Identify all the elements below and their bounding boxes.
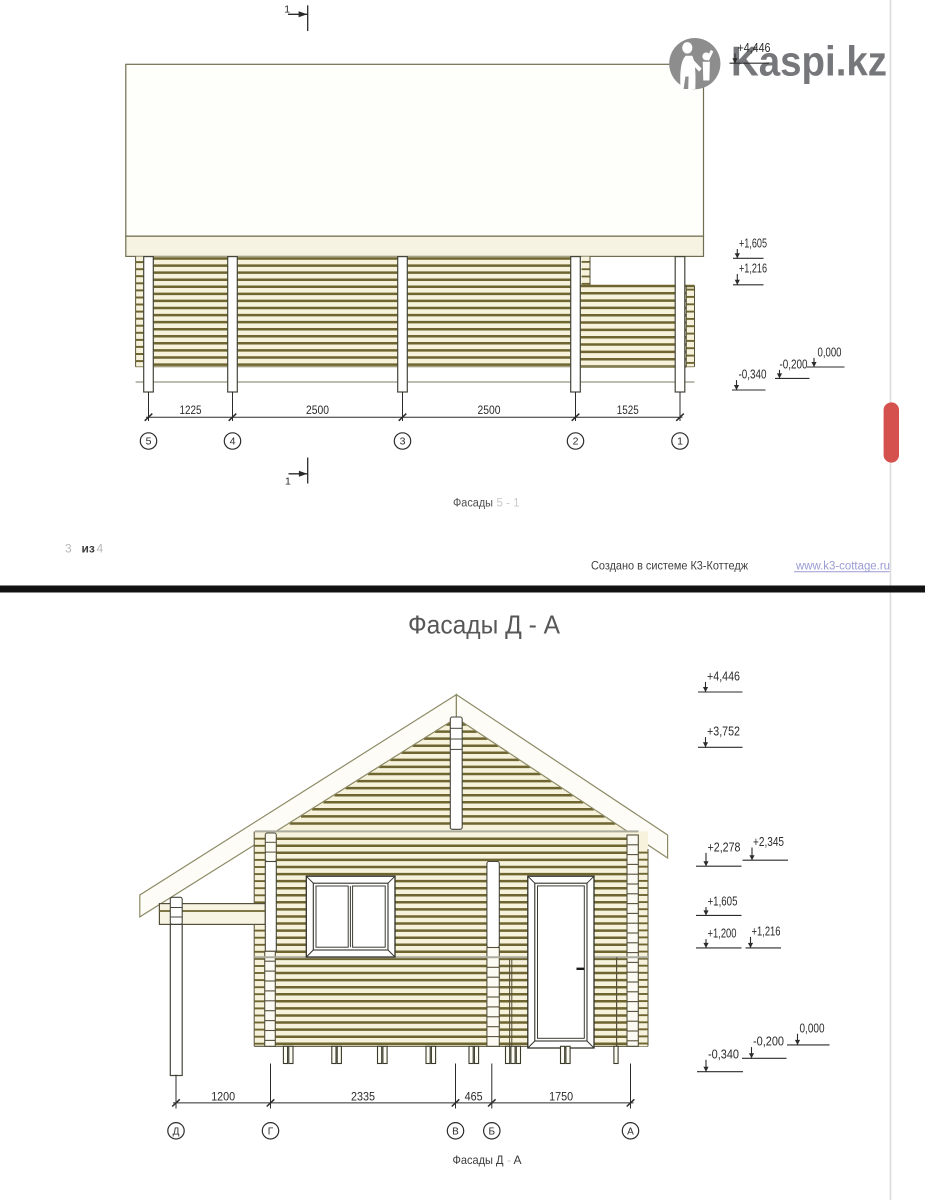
svg-text:В: В — [452, 1126, 459, 1137]
svg-text:-0,200: -0,200 — [780, 357, 808, 371]
svg-text:-0,340: -0,340 — [739, 368, 767, 382]
svg-text:+2,345: +2,345 — [753, 835, 784, 849]
svg-text:465: 465 — [465, 1089, 483, 1103]
svg-text:из: из — [82, 542, 95, 556]
svg-text:2500: 2500 — [306, 403, 329, 417]
svg-text:+1,605: +1,605 — [708, 895, 738, 909]
svg-text:А: А — [514, 1153, 522, 1167]
svg-text:-0,340: -0,340 — [708, 1047, 739, 1061]
svg-text:1525: 1525 — [617, 403, 639, 417]
svg-text:1: 1 — [677, 436, 683, 448]
svg-text:Создано в системе К3-Коттедж: Создано в системе К3-Коттедж — [591, 559, 749, 573]
svg-text:А: А — [627, 1126, 634, 1137]
svg-text:1: 1 — [285, 476, 291, 488]
svg-text:1200: 1200 — [211, 1089, 235, 1103]
svg-text:5: 5 — [146, 436, 152, 448]
svg-text:+1,216: +1,216 — [739, 262, 767, 276]
svg-text:Д: Д — [173, 1126, 180, 1137]
svg-text:+2,278: +2,278 — [708, 840, 741, 854]
svg-text:+3,752: +3,752 — [707, 725, 740, 739]
svg-text:Г: Г — [268, 1126, 274, 1137]
svg-text:Б: Б — [489, 1126, 496, 1137]
svg-text:5 - 1: 5 - 1 — [497, 497, 520, 509]
svg-text:+1,605: +1,605 — [739, 237, 767, 251]
svg-text:3: 3 — [65, 542, 72, 556]
svg-text:+4,446: +4,446 — [738, 41, 771, 55]
svg-text:2335: 2335 — [351, 1089, 375, 1103]
svg-text:+1,216: +1,216 — [752, 924, 781, 938]
svg-text:0,000: 0,000 — [818, 345, 842, 359]
svg-text:0,000: 0,000 — [800, 1021, 825, 1035]
svg-text:2: 2 — [573, 436, 579, 448]
svg-text:Фасады Д - А: Фасады Д - А — [408, 610, 561, 640]
svg-text:www.k3-cottage.ru: www.k3-cottage.ru — [795, 561, 890, 573]
svg-text:Фасады: Фасады — [453, 497, 493, 509]
svg-text:Фасады Д: Фасады Д — [453, 1153, 504, 1167]
svg-text:4: 4 — [97, 542, 104, 556]
svg-text:-: - — [507, 1153, 511, 1167]
svg-text:2500: 2500 — [478, 403, 501, 417]
svg-text:1: 1 — [284, 4, 290, 16]
svg-text:+4,446: +4,446 — [707, 669, 740, 683]
svg-text:-0,200: -0,200 — [753, 1035, 784, 1049]
svg-text:1750: 1750 — [549, 1089, 573, 1103]
svg-text:+1,200: +1,200 — [708, 927, 737, 941]
svg-text:1225: 1225 — [180, 403, 202, 417]
svg-text:3: 3 — [400, 436, 406, 448]
svg-text:4: 4 — [230, 436, 236, 448]
